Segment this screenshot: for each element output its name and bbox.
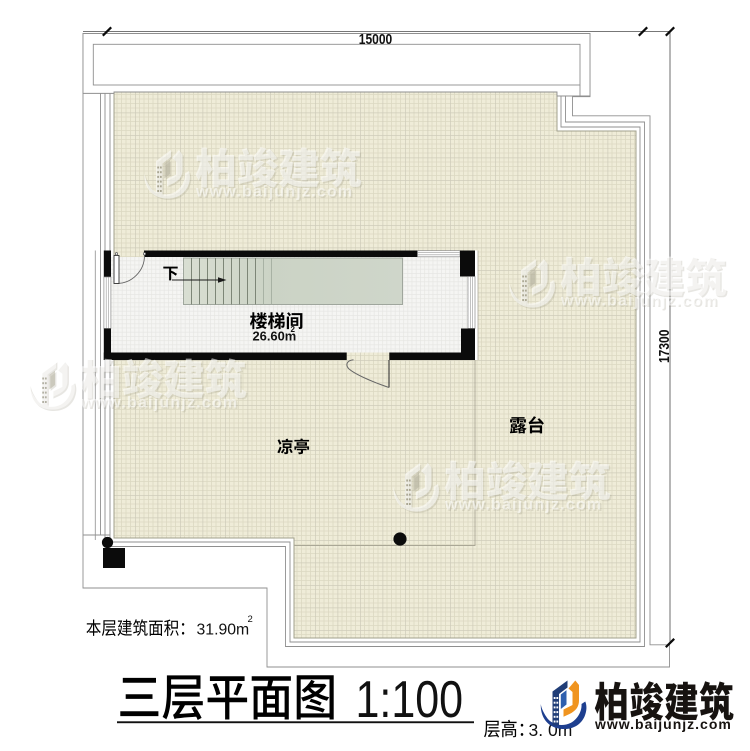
- svg-text:www.baijunjz.com: www.baijunjz.com: [80, 395, 238, 412]
- svg-text:1:100: 1:100: [356, 671, 464, 729]
- svg-text:31.90m: 31.90m: [197, 622, 250, 639]
- svg-text:www.baijunjz.com: www.baijunjz.com: [444, 497, 602, 514]
- svg-text:www.baijunjz.com: www.baijunjz.com: [560, 293, 718, 310]
- svg-text:www.baijunjz.com: www.baijunjz.com: [594, 716, 732, 732]
- svg-text:2: 2: [291, 325, 296, 334]
- svg-text:2: 2: [248, 614, 253, 625]
- svg-text:15000: 15000: [359, 31, 392, 47]
- svg-text:www.baijunjz.com: www.baijunjz.com: [195, 184, 353, 201]
- svg-text:17300: 17300: [656, 330, 672, 363]
